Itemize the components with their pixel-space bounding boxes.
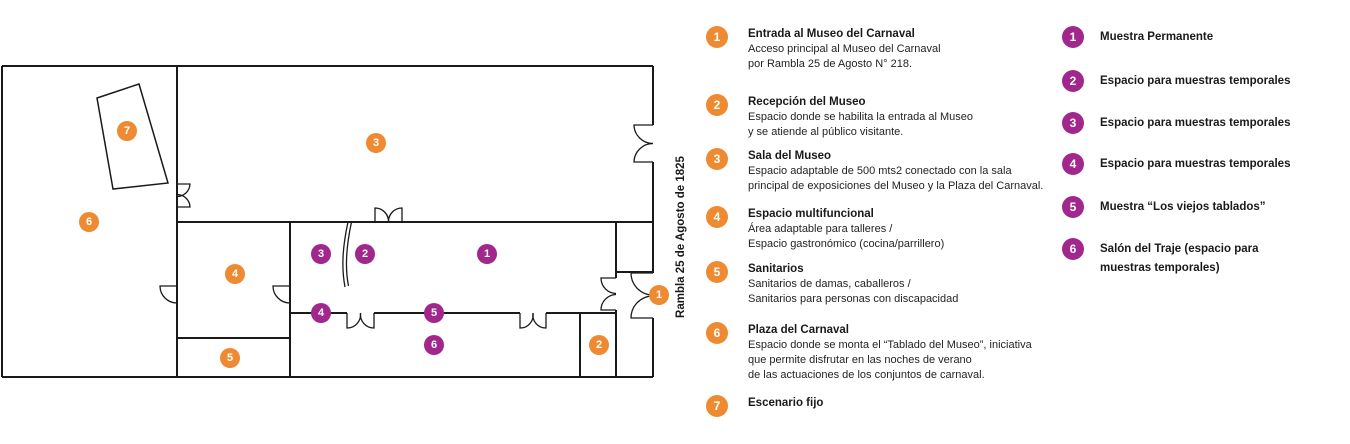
legend-number-badge: 4	[706, 206, 728, 228]
legend-orange-item-1: 1 Entrada al Museo del Carnaval Acceso p…	[706, 26, 1078, 72]
legend-desc-line: Espacio donde se monta el “Tablado del M…	[748, 338, 1078, 353]
legend-number-badge: 4	[1062, 153, 1084, 175]
legend-title: Sala del Museo	[748, 148, 1078, 164]
legend-number-badge: 1	[706, 26, 728, 48]
legend-number-badge: 6	[706, 322, 728, 344]
legend-number-badge: 7	[706, 395, 728, 417]
legend-purple-item-3: 3 Espacio para muestras temporales	[1062, 112, 1350, 134]
legend-number-badge: 2	[706, 94, 728, 116]
floor-plan-svg	[0, 0, 700, 444]
legend-number-badge: 1	[1062, 26, 1084, 48]
legend-number-badge: 2	[1062, 70, 1084, 92]
legend-orange-item-2: 2 Recepción del Museo Espacio donde se h…	[706, 94, 1078, 140]
legend-number-badge: 6	[1062, 238, 1084, 260]
legend-title: Sanitarios	[748, 261, 1078, 277]
museum-floorplan-page: 1234567123456 Rambla 25 de Agosto de 182…	[0, 0, 1350, 444]
legend-desc-line: Espacio gastronómico (cocina/parrillero)	[748, 237, 1078, 252]
legend-desc-line: Área adaptable para talleres /	[748, 222, 1078, 237]
legend-orange-item-3: 3 Sala del Museo Espacio adaptable de 50…	[706, 148, 1078, 194]
legend-desc-line: Sanitarios para personas con discapacida…	[748, 292, 1078, 307]
legend-number-badge: 3	[1062, 112, 1084, 134]
legend-title: Plaza del Carnaval	[748, 322, 1078, 338]
legend-desc-line: Espacio adaptable de 500 mts2 conectado …	[748, 164, 1078, 179]
legend-orange-item-7: 7 Escenario fijo	[706, 395, 1078, 417]
legend-purple-item-5: 5 Muestra “Los viejos tablados”	[1062, 196, 1350, 218]
legend-orange-item-6: 6 Plaza del Carnaval Espacio donde se mo…	[706, 322, 1078, 383]
legend-title: Muestra “Los viejos tablados”	[1100, 196, 1350, 215]
legend-number-badge: 3	[706, 148, 728, 170]
legend-title-line-2: muestras temporales)	[1100, 257, 1350, 276]
legend-title: Espacio para muestras temporales	[1100, 112, 1350, 131]
legend-desc-line: Espacio donde se habilita la entrada al …	[748, 110, 1078, 125]
door-symbols	[160, 125, 653, 328]
legend-title: Salón del Traje (espacio para	[1100, 238, 1350, 257]
legend-desc-line: por Rambla 25 de Agosto N° 218.	[748, 57, 1078, 72]
legend-purple-item-6: 6 Salón del Traje (espacio para muestras…	[1062, 238, 1350, 276]
legend-desc-line: Sanitarios de damas, caballeros /	[748, 277, 1078, 292]
legend-title: Recepción del Museo	[748, 94, 1078, 110]
legend-desc-line: y se atiende al público visitante.	[748, 125, 1078, 140]
legend-title: Espacio para muestras temporales	[1100, 153, 1350, 172]
legend-purple-item-2: 2 Espacio para muestras temporales	[1062, 70, 1350, 92]
legend-number-badge: 5	[706, 261, 728, 283]
legend-number-badge: 5	[1062, 196, 1084, 218]
legend-purple-item-1: 1 Muestra Permanente	[1062, 26, 1350, 48]
legend-title: Muestra Permanente	[1100, 26, 1350, 45]
legend-title: Espacio multifuncional	[748, 206, 1078, 222]
stage-outline	[97, 84, 168, 189]
street-label: Rambla 25 de Agosto de 1825	[675, 147, 691, 327]
legend-desc-line: de las actuaciones de los conjuntos de c…	[748, 368, 1078, 383]
legend-orange-item-5: 5 Sanitarios Sanitarios de damas, caball…	[706, 261, 1078, 307]
legend-purple-item-4: 4 Espacio para muestras temporales	[1062, 153, 1350, 175]
legend-title: Entrada al Museo del Carnaval	[748, 26, 1078, 42]
legend-desc-line: que permite disfrutar en las noches de v…	[748, 353, 1078, 368]
legend-title: Espacio para muestras temporales	[1100, 70, 1350, 89]
legend-desc-line: Acceso principal al Museo del Carnaval	[748, 42, 1078, 57]
legend-desc-line: principal de exposiciones del Museo y la…	[748, 179, 1078, 194]
legend-orange-item-4: 4 Espacio multifuncional Área adaptable …	[706, 206, 1078, 252]
legend-title: Escenario fijo	[748, 395, 1078, 411]
